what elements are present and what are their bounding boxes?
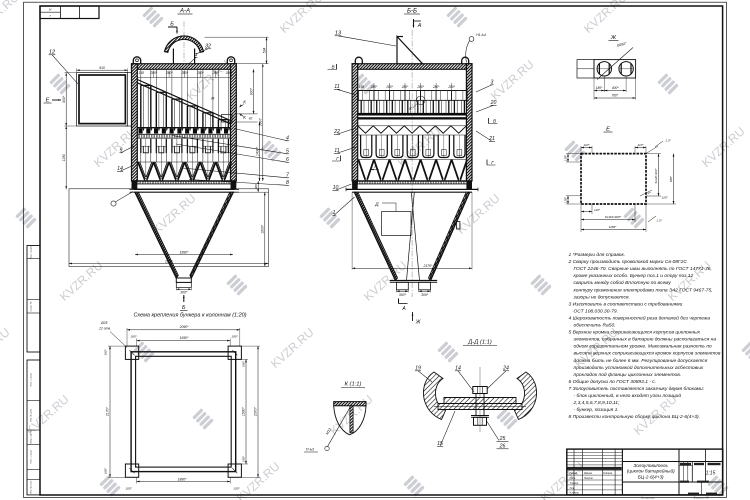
svg-text:180*: 180* bbox=[231, 335, 238, 339]
svg-text:130*: 130* bbox=[563, 196, 567, 203]
svg-text:кроме указанных особо. Бункер: кроме указанных особо. Бункер поз.1 и оп… bbox=[574, 273, 694, 279]
svg-text:1600*: 1600* bbox=[261, 224, 265, 234]
svg-text:Золоуловитель: Золоуловитель bbox=[633, 463, 668, 468]
svg-text:Е: Е bbox=[46, 98, 50, 104]
svg-text:Ж: Ж bbox=[610, 35, 617, 41]
svg-text:Петров: Петров bbox=[584, 478, 593, 480]
svg-text:8 Произвести контрольную сборк: 8 Произвести контрольную сборку циклона … bbox=[569, 414, 701, 420]
svg-text:400*: 400* bbox=[612, 86, 619, 90]
svg-text:1.3*: 1.3* bbox=[656, 219, 662, 223]
svg-text:БЦ-2-6(4+3): БЦ-2-6(4+3) bbox=[638, 475, 664, 480]
svg-text:1186*: 1186* bbox=[609, 225, 617, 229]
svg-text:110*: 110* bbox=[594, 208, 601, 212]
svg-text:Д-Д (1:1): Д-Д (1:1) bbox=[467, 340, 492, 346]
svg-text:элементов, собранных в батарею: элементов, собранных в батарею должны ра… bbox=[574, 337, 717, 343]
svg-text:2170*: 2170* bbox=[105, 407, 109, 418]
svg-text:180*: 180* bbox=[130, 335, 137, 339]
svg-text:760*: 760* bbox=[612, 93, 619, 97]
svg-text:100*: 100* bbox=[104, 467, 108, 474]
svg-text:Формат А2: Формат А2 bbox=[693, 496, 709, 500]
svg-text:3 Изготовить в соответствии с: 3 Изготовить в соответствии с требования… bbox=[569, 301, 683, 307]
svg-text:Пров.: Пров. bbox=[570, 478, 576, 480]
svg-text:280*: 280* bbox=[225, 71, 233, 75]
svg-text:одном горизонтальном уровне. М: одном горизонтальном уровне. Максимальна… bbox=[574, 344, 713, 350]
svg-text:Утв.: Утв. bbox=[570, 488, 576, 490]
svg-text:6 Общие допуски по ГОСТ 30893.: 6 Общие допуски по ГОСТ 30893.1 - с. bbox=[569, 379, 657, 385]
svg-text:1.3*: 1.3* bbox=[665, 139, 671, 143]
svg-text:2170*: 2170* bbox=[422, 264, 433, 268]
svg-text:Сидоров: Сидоров bbox=[603, 472, 613, 475]
svg-text:180*: 180* bbox=[596, 86, 603, 90]
svg-text:5х120=600*: 5х120=600* bbox=[654, 168, 658, 184]
svg-text:158: 158 bbox=[139, 71, 145, 75]
svg-text:Подп. и дата: Подп. и дата bbox=[30, 449, 33, 463]
svg-text:1930*: 1930* bbox=[241, 407, 245, 417]
svg-text:В: В bbox=[331, 65, 334, 70]
svg-text:Копировал: Копировал bbox=[641, 496, 655, 500]
svg-text:Д: Д bbox=[374, 202, 379, 208]
svg-text:- блок циклонный, в него входя: - блок циклонный, в него входят узлы поз… bbox=[574, 392, 682, 399]
svg-text:Б: Б bbox=[182, 305, 186, 311]
svg-text:А: А bbox=[373, 164, 377, 169]
svg-text:910: 910 bbox=[99, 66, 105, 70]
svg-text:контуру применения электродами: контуру применения электродами типа Э42 … bbox=[574, 287, 713, 293]
svg-text:600*: 600* bbox=[249, 87, 253, 95]
svg-text:- бункер, позиция 1.: - бункер, позиция 1. bbox=[574, 407, 619, 413]
svg-text:ОСТ 108.030.30-79.: ОСТ 108.030.30-79. bbox=[574, 308, 618, 314]
svg-text:7 Золоуловитель поставляется з: 7 Золоуловитель поставляется заказчику д… bbox=[569, 386, 705, 392]
svg-text:300*: 300* bbox=[399, 293, 407, 297]
svg-text:880*: 880* bbox=[669, 175, 673, 182]
svg-text:П-Ь3: П-Ь3 bbox=[306, 448, 314, 452]
svg-text:Подп. и дата: Подп. и дата bbox=[30, 372, 33, 386]
svg-text:Иванов: Иванов bbox=[584, 473, 593, 475]
svg-text:А: А bbox=[417, 23, 422, 29]
svg-text:2875: 2875 bbox=[164, 260, 173, 264]
svg-text:Е: Е bbox=[606, 127, 610, 133]
svg-text:Взам. инв. №: Взам. инв. № bbox=[30, 430, 33, 444]
svg-text:1190: 1190 bbox=[62, 154, 66, 161]
svg-text:300: 300 bbox=[254, 184, 258, 189]
svg-text:Н.контр.: Н.контр. bbox=[570, 493, 580, 495]
svg-text:Инв. № дубл.: Инв. № дубл. bbox=[30, 408, 33, 422]
svg-text:Ø25: Ø25 bbox=[100, 321, 108, 325]
svg-text:А: А bbox=[401, 306, 406, 312]
svg-text:600*: 600* bbox=[62, 95, 66, 103]
svg-text:1:15: 1:15 bbox=[706, 471, 716, 477]
svg-text:(циклон батарейный): (циклон батарейный) bbox=[627, 468, 675, 474]
svg-text:110*: 110* bbox=[638, 143, 645, 147]
svg-text:1650*: 1650* bbox=[180, 336, 190, 340]
svg-text:534: 534 bbox=[262, 48, 266, 54]
svg-text:высоте верхних соприкасающихся: высоте верхних соприкасающихся кромок ко… bbox=[574, 352, 721, 357]
svg-text:Б-Б: Б-Б bbox=[407, 8, 417, 15]
svg-text:1890*: 1890* bbox=[180, 251, 190, 255]
svg-text:100*: 100* bbox=[125, 487, 132, 491]
svg-text:прокладок под фланцы циклонных: прокладок под фланцы циклонных элементов… bbox=[574, 372, 682, 378]
svg-text:ГОСТ 2246-70. Сварные швы выпо: ГОСТ 2246-70. Сварные швы выполнять по Г… bbox=[574, 266, 712, 272]
svg-text:обеспечить Ra50.: обеспечить Ra50. bbox=[574, 323, 616, 329]
svg-text:158: 158 bbox=[359, 85, 365, 89]
svg-text:100*: 100* bbox=[104, 349, 108, 356]
svg-text:2090*: 2090* bbox=[179, 325, 190, 329]
svg-text:сварить между собой Вплотную п: сварить между собой Вплотную по всему bbox=[574, 279, 672, 286]
svg-text:2,3,4,5,6,7,8,9,10,11;: 2,3,4,5,6,7,8,9,10,11; bbox=[573, 400, 621, 406]
svg-text:К: К bbox=[243, 115, 246, 120]
svg-text:зазоры не допускаются.: зазоры не допускаются. bbox=[573, 294, 630, 300]
svg-text:130*: 130* bbox=[563, 154, 567, 161]
svg-text:Т.контр.: Т.контр. bbox=[570, 483, 580, 485]
svg-text:Справ. №: Справ. № bbox=[30, 301, 33, 312]
svg-text:5 Верхние кромки соприкасающих: 5 Верхние кромки соприкасающихся корпусо… bbox=[569, 330, 701, 336]
svg-text:производить установкой дополни: производить установкой дополнительных ас… bbox=[574, 364, 704, 371]
svg-text:3: 3 bbox=[195, 52, 198, 57]
svg-text:Инв. № подл.: Инв. № подл. bbox=[30, 480, 33, 494]
svg-text:Н1-Ь4: Н1-Ь4 bbox=[476, 33, 486, 37]
svg-text:120*: 120* bbox=[661, 196, 668, 200]
svg-text:42: 42 bbox=[249, 117, 253, 121]
svg-text:1430*: 1430* bbox=[255, 146, 259, 156]
svg-text:К (1:1): К (1:1) bbox=[345, 382, 362, 388]
svg-text:Разраб.: Разраб. bbox=[570, 473, 579, 475]
svg-text:180*: 180* bbox=[241, 360, 245, 367]
svg-text:4 Шероховатость поверхностей р: 4 Шероховатость поверхностей реза детале… bbox=[569, 315, 711, 322]
svg-text:300*: 300* bbox=[180, 291, 188, 295]
svg-text:Ж: Ж bbox=[415, 320, 421, 326]
svg-text:2370*: 2370* bbox=[253, 407, 257, 418]
svg-text:300*: 300* bbox=[421, 293, 429, 297]
svg-text:К: К bbox=[243, 100, 246, 105]
svg-text:А-А: А-А bbox=[179, 8, 190, 15]
svg-text:8х116=928*: 8х116=928* bbox=[605, 215, 622, 219]
svg-text:2967: 2967 bbox=[259, 118, 263, 127]
svg-text:Схема крепления бункера к коло: Схема крепления бункера к колоннам (1:20… bbox=[133, 313, 246, 319]
svg-text:должна быть не более 6 мм. Рег: должна быть не более 6 мм. Регулирование… bbox=[574, 358, 708, 364]
svg-text:1 *Размеры для справок.: 1 *Размеры для справок. bbox=[569, 252, 626, 258]
svg-text:1890*: 1890* bbox=[178, 478, 188, 482]
svg-text:180*: 180* bbox=[241, 455, 245, 462]
svg-text:В: В bbox=[493, 119, 496, 124]
svg-text:100*: 100* bbox=[233, 487, 240, 491]
svg-text:34: 34 bbox=[211, 97, 215, 101]
svg-text:110*: 110* bbox=[584, 143, 591, 147]
svg-text:2 Сварку производить проволоко: 2 Сварку производить проволокой марки Св… bbox=[568, 258, 688, 265]
svg-text:Перв. примен.: Перв. примен. bbox=[31, 244, 33, 259]
svg-text:12 отв.: 12 отв. bbox=[99, 327, 111, 331]
